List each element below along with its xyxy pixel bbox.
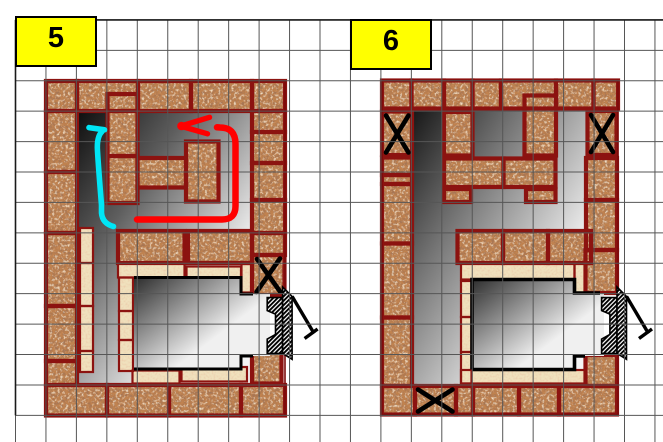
svg-text:6: 6 (383, 25, 399, 57)
svg-text:5: 5 (48, 22, 64, 54)
